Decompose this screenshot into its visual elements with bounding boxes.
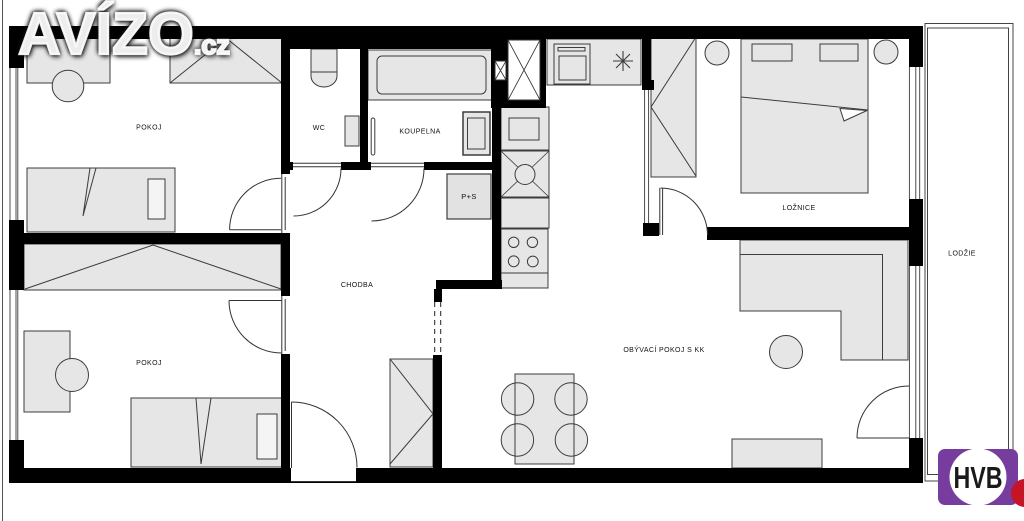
svg-text:HVB: HVB xyxy=(953,460,1002,495)
svg-text:CHODBA: CHODBA xyxy=(341,282,373,289)
svg-text:P+S: P+S xyxy=(461,192,477,201)
svg-text:POKOJ: POKOJ xyxy=(136,125,162,132)
svg-text:POKOJ: POKOJ xyxy=(136,360,162,367)
svg-text:WC: WC xyxy=(313,125,325,132)
svg-text:LOŽNICE: LOŽNICE xyxy=(782,203,815,212)
svg-text:OBÝVACÍ POKOJ S KK: OBÝVACÍ POKOJ S KK xyxy=(623,345,704,354)
svg-text:LODŽIE: LODŽIE xyxy=(948,249,976,258)
svg-text:KOUPELNA: KOUPELNA xyxy=(399,129,440,136)
